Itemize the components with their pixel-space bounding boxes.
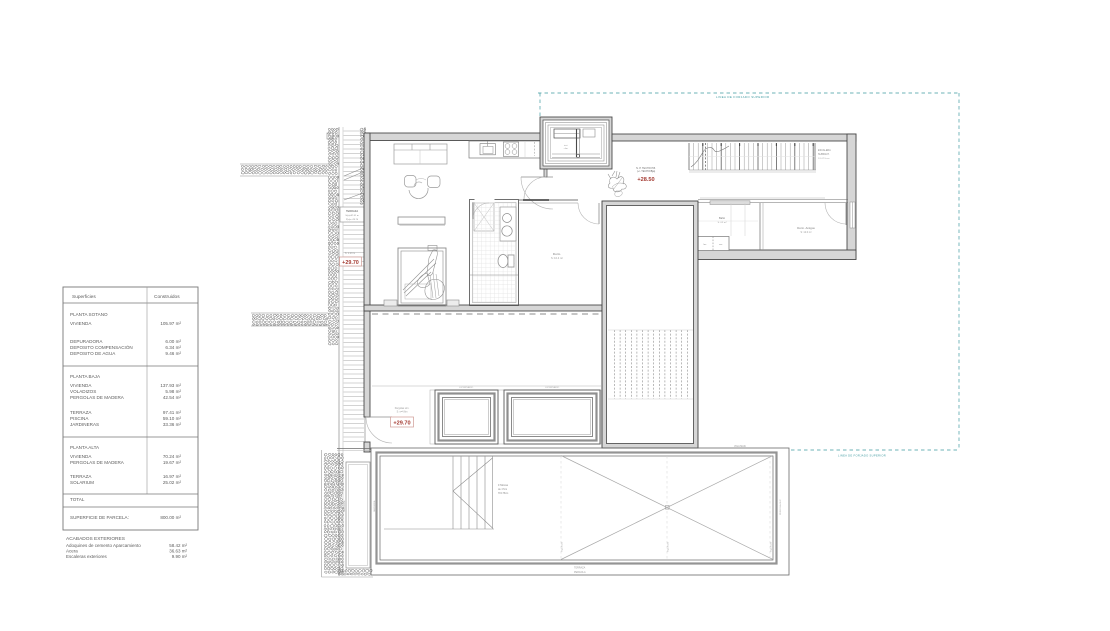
svg-text:42.54 m²: 42.54 m² [163,395,182,400]
svg-text:Superficies: Superficies [72,294,96,300]
svg-text:DEPOSITO COMPENSACIÓN: DEPOSITO COMPENSACIÓN [70,344,133,350]
svg-text:70.24 m²: 70.24 m² [163,454,182,459]
svg-text:S: 12.0 m²: S: 12.0 m² [800,231,811,234]
svg-text:Viga 20x20: Viga 20x20 [668,541,670,552]
svg-text:36.63 m²: 36.63 m² [169,549,187,554]
svg-text:Construidos: Construidos [154,294,180,300]
svg-text:16.97 m²: 16.97 m² [163,474,182,479]
svg-text:S: s=4.6m: S: s=4.6m [397,411,408,414]
svg-text:Baño: Baño [719,216,726,220]
svg-text:S: 4.5 m²: S: 4.5 m² [718,221,727,224]
svg-text:PERGOLA: PERGOLA [574,571,586,574]
svg-text:6.00 m²: 6.00 m² [165,339,181,344]
svg-text:PERGOLAS DE MADERA: PERGOLAS DE MADERA [70,460,125,465]
svg-text:JARDINERA: JARDINERA [343,500,346,512]
svg-text:6.34 m²: 6.34 m² [165,345,181,350]
svg-text:9 Tabicas: 9 Tabicas [498,484,509,487]
svg-text:TERRAZA: TERRAZA [574,567,586,570]
svg-text:VOLADIZOS: VOLADIZOS [70,389,96,394]
svg-text:SUBIDA H.: SUBIDA H. [818,153,830,156]
svg-text:VIVIENDA: VIVIENDA [70,383,92,388]
svg-text:PLANTA SOTANO: PLANTA SOTANO [70,312,108,317]
svg-text:de 17cm: de 17cm [498,488,507,491]
svg-text:inst.: inst. [564,144,568,147]
svg-text:TOTAL: TOTAL [70,497,85,502]
svg-text:Viga 20x20: Viga 20x20 [562,541,564,552]
svg-text:PISCINA: PISCINA [70,416,89,421]
svg-text:TERRAZA: TERRAZA [346,209,358,213]
svg-text:800.00 m²: 800.00 m² [160,515,181,520]
svg-text:S: 10.4 m²: S: 10.4 m² [551,256,563,260]
svg-text:LUCERNARIO: LUCERNARIO [545,386,560,389]
svg-text:SUPERFICIE DE PARCELA:: SUPERFICIE DE PARCELA: [70,515,129,520]
svg-text:+28.50: +28.50 [637,177,654,183]
svg-text:H=175cm: H=175cm [498,492,508,495]
svg-text:PERGOLAS DE MADERA: PERGOLAS DE MADERA [70,395,125,400]
svg-text:5.98 m²: 5.98 m² [165,389,181,394]
svg-text:ESCALERA: ESCALERA [818,149,831,152]
svg-text:17x17.5 cm: 17x17.5 cm [818,158,829,160]
svg-text:TERRAZA: TERRAZA [70,474,92,479]
svg-text:59.10 m²: 59.10 m² [163,416,182,421]
svg-text:Adoquines de cemento Aparcamie: Adoquines de cemento Aparcamiento [66,543,141,548]
svg-text:105.97 m²: 105.97 m² [160,321,181,326]
svg-text:DEPURADORA: DEPURADORA [70,339,103,344]
svg-text:LINEA DE FORJADO SUPERIOR: LINEA DE FORJADO SUPERIOR [838,454,886,458]
svg-text:25.02 m²: 25.02 m² [163,480,182,485]
svg-text:33.36 m²: 33.36 m² [163,422,182,427]
svg-text:SOLARIUM: SOLARIUM [70,480,94,485]
svg-text:ACABADOS EXTERIORES: ACABADOS EXTERIORES [66,536,125,542]
svg-text:58.42 m²: 58.42 m² [169,543,187,548]
svg-text:137.93 m²: 137.93 m² [160,383,181,388]
svg-text:97.41 m²: 97.41 m² [163,410,182,415]
svg-text:9.46 m²: 9.46 m² [165,351,181,356]
svg-text:PERGOLA SUP.: PERGOLA SUP. [779,499,782,515]
svg-text:PLANTA BAJA: PLANTA BAJA [70,374,101,379]
svg-text:TERRAZA: TERRAZA [70,410,92,415]
svg-text:LINEA DE FORJADO SUPERIOR: LINEA DE FORJADO SUPERIOR [716,95,770,99]
svg-text:Dorm.: Dorm. [553,252,561,256]
svg-text:VIVIENDA: VIVIENDA [70,454,92,459]
svg-text:sec.: sec. [719,244,723,246]
svg-text:S(a)=97.41 m: S(a)=97.41 m [345,215,358,217]
svg-text:Acera: Acera [66,549,78,554]
svg-text:JARDINERA: JARDINERA [373,500,376,512]
svg-text:S: 1.23 m: S: 1.23 m [345,252,355,255]
svg-text:P(a)=+29.70: P(a)=+29.70 [346,219,359,221]
svg-text:+29.70: +29.70 [342,260,359,266]
svg-text:19.67 m²: 19.67 m² [163,460,182,465]
svg-text:Escaleras exteriores: Escaleras exteriores [66,554,108,559]
svg-text:Viga 20x20: Viga 20x20 [771,541,773,552]
svg-text:Dorm. Amigos: Dorm. Amigos [797,226,815,230]
svg-text:lav.: lav. [703,244,707,246]
svg-text:+29.70: +29.70 [393,421,410,427]
svg-text:clim.: clim. [564,148,569,150]
svg-text:LUCERNARIO: LUCERNARIO [459,386,474,389]
svg-text:VIVIENDA: VIVIENDA [70,321,92,326]
svg-text:PLANTA ALTA: PLANTA ALTA [70,445,100,450]
svg-text:9.90 m²: 9.90 m² [172,554,188,559]
svg-text:JARDINERAS: JARDINERAS [70,422,99,427]
svg-text:DEPOSITO DE AGUA: DEPOSITO DE AGUA [70,351,116,356]
svg-text:(+/- TECHO/Bja): (+/- TECHO/Bja) [637,170,656,173]
svg-text:VIGA MAD.: VIGA MAD. [734,445,747,448]
